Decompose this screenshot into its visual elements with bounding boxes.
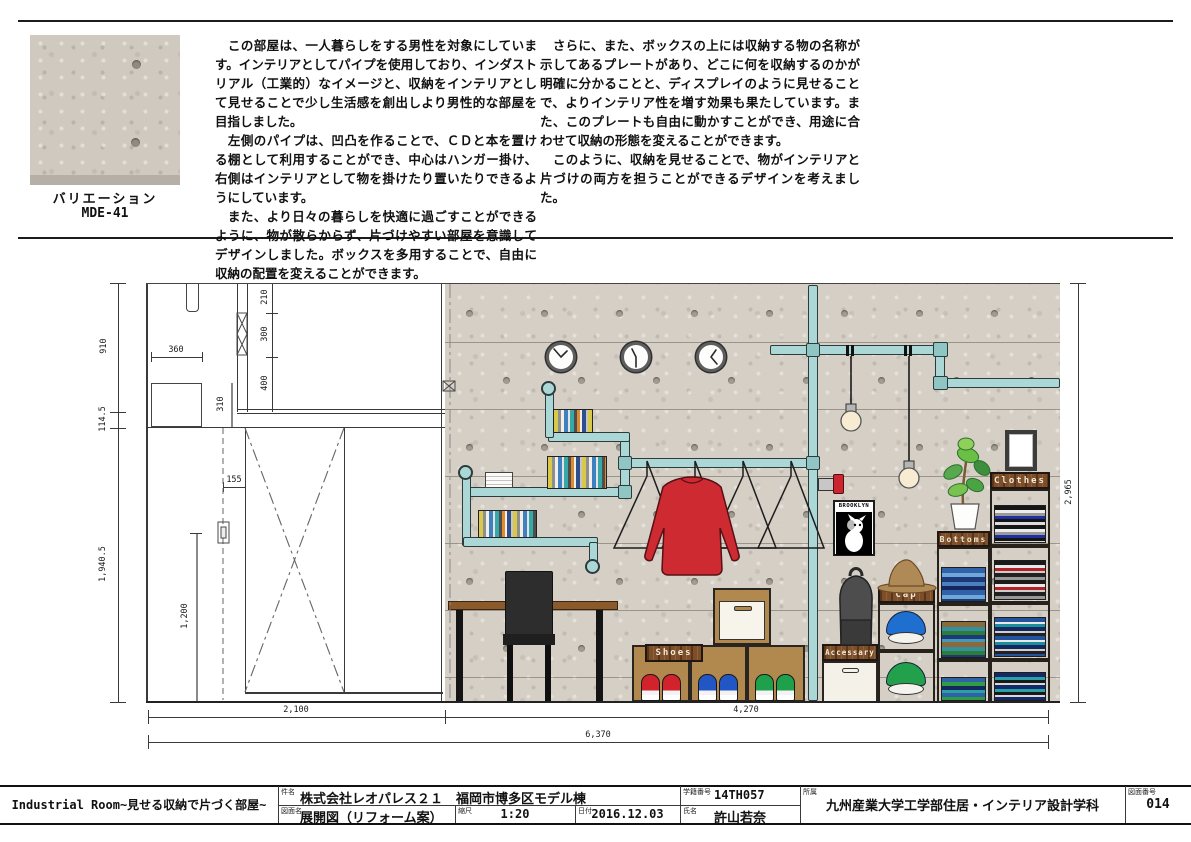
sneaker-red — [641, 674, 660, 701]
date-value: 2016.12.03 — [575, 807, 680, 821]
dim-line-360 — [151, 357, 202, 358]
subject-label: 件名 — [281, 787, 295, 797]
chair-seat — [503, 634, 555, 645]
dim-400: 400 — [260, 365, 270, 401]
dim-155: 155 — [214, 475, 254, 485]
dim-line-left — [118, 283, 119, 703]
concrete-tie-hole — [841, 310, 848, 317]
concrete-tie-hole — [766, 310, 773, 317]
folded-clothes-stack — [994, 617, 1046, 657]
dim-tick — [148, 710, 149, 724]
sneaker-blue — [719, 674, 738, 701]
dim-tick — [110, 702, 126, 703]
pipe-top-horizontal-right — [935, 378, 1060, 388]
concrete-tie-hole — [691, 310, 698, 317]
pipe-elbow-fitting — [933, 342, 948, 357]
material-sample-image — [30, 35, 180, 185]
duct-line-left — [237, 283, 238, 412]
concrete-tie-hole — [953, 511, 960, 518]
concrete-tie-hole — [878, 511, 885, 518]
pipe-flange — [585, 559, 600, 574]
wall-joint-line-a — [441, 283, 442, 703]
cd-stack-bottom — [478, 510, 537, 538]
scale-cell: 縮尺 1:20 — [455, 805, 575, 823]
valve-body — [818, 478, 834, 491]
dim-tick — [202, 352, 203, 362]
poster-title: BROOKLYN — [836, 503, 872, 512]
concrete-tie-hole — [653, 511, 660, 518]
sample-caption: バリエーション — [30, 188, 180, 207]
concrete-tie-hole — [691, 578, 698, 585]
folded-clothes-stack — [941, 621, 986, 658]
ceiling-fixture — [186, 283, 199, 312]
project-title: Industrial Room~見せる収納で片づく部屋~ — [0, 786, 278, 823]
concrete-tie-hole — [578, 377, 585, 384]
concrete-tie-hole — [841, 444, 848, 451]
left-wall-line — [146, 283, 148, 703]
pipe-hanger-rail — [624, 458, 814, 468]
dim-chain-interior — [272, 283, 273, 412]
concrete-tie-hole — [766, 578, 773, 585]
counter-line-top — [237, 409, 445, 410]
cd-stack-top — [553, 409, 593, 433]
cap-blue — [886, 611, 926, 645]
folded-clothes-stack — [941, 677, 986, 701]
drawing-name-label: 図面名 — [281, 806, 302, 816]
dim-tick — [1048, 735, 1049, 749]
dim-tick — [110, 412, 126, 413]
sneaker-green — [755, 674, 774, 701]
desk-leg-left — [456, 610, 463, 702]
sheet-no-cell: 図面番号 014 — [1125, 786, 1191, 823]
sneaker-green — [776, 674, 795, 701]
pipe-top-horizontal — [770, 345, 945, 355]
pipe-tee-fitting — [806, 456, 820, 470]
folded-clothes-stack — [994, 505, 1046, 543]
sample-code: MDE-41 — [30, 206, 180, 221]
plate-cap: Cap — [878, 587, 935, 603]
chair-leg — [507, 645, 513, 702]
dim-line-bottom-1 — [148, 717, 1048, 718]
wall-cabinet — [151, 383, 202, 427]
dim-910: 910 — [99, 326, 109, 366]
chair-back — [505, 571, 553, 637]
wall-clock-3 — [696, 342, 726, 372]
header-top-rule — [18, 20, 1173, 22]
drawing-name-cell: 図面名 展開図（リフォーム案） — [278, 805, 455, 823]
concrete-tie-hole — [916, 444, 923, 451]
name-cell: 氏名 許山若奈 — [680, 805, 800, 823]
concrete-tie-hole — [578, 645, 585, 652]
concrete-tie-hole — [466, 578, 473, 585]
door-panel-right-edge — [344, 428, 345, 692]
sample-tie-hole — [132, 60, 141, 69]
dim-line-bottom-2 — [148, 742, 1048, 743]
drawing-sheet: バリエーション MDE-41 この部屋は、一人暮らしをする男性を対象にしています… — [0, 0, 1191, 842]
description-paragraph-right: さらに、また、ボックスの上には収納する物の名称が示してあるプレートがあり、どこに… — [540, 37, 860, 208]
concrete-tie-hole — [541, 310, 548, 317]
pipe-cross-fitting — [806, 343, 820, 357]
dim-tick — [110, 283, 126, 284]
sample-tie-hole — [131, 138, 140, 147]
date-cell: 日付 2016.12.03 — [575, 805, 680, 823]
concrete-tie-hole — [916, 310, 923, 317]
dim-210: 210 — [260, 279, 270, 315]
concrete-tie-hole — [991, 444, 998, 451]
accessary-drawer — [822, 661, 878, 703]
dim-tick — [110, 428, 126, 429]
student-id-cell: 学籍番号 14TH057 — [680, 786, 800, 805]
dim-tick — [190, 533, 202, 534]
box-handle-slot — [734, 606, 752, 611]
affiliation-value: 九州産業大学工学部住居・インテリア設計学科 — [800, 786, 1125, 823]
pipe-shelf-bottom — [463, 537, 598, 547]
cap-green — [886, 662, 926, 696]
concrete-tie-hole — [541, 444, 548, 451]
pipe-cross-fitting — [618, 456, 632, 470]
dim-4270: 4,270 — [716, 705, 776, 715]
dim-line-right — [1078, 283, 1079, 703]
description-paragraph-left: この部屋は、一人暮らしをする男性を対象にしています。インテリアとしてパイプを使用… — [215, 37, 537, 284]
cord-clamp — [909, 345, 912, 356]
door-head-line — [146, 427, 445, 428]
name-label: 氏名 — [683, 806, 697, 816]
dim-6370: 6,370 — [568, 730, 628, 740]
pipe-left-riser — [462, 476, 471, 546]
dim-tick — [1070, 283, 1086, 284]
pipe-flange — [541, 381, 556, 396]
cord-clamp — [851, 345, 854, 356]
wall-clock-2 — [621, 342, 651, 372]
concrete-tie-hole — [691, 444, 698, 451]
floor-line — [146, 701, 1060, 703]
drawing-name-value: 展開図（リフォーム案） — [300, 807, 443, 826]
dim-tick — [151, 352, 152, 362]
concrete-tie-hole — [841, 578, 848, 585]
box-front-panel — [719, 601, 765, 640]
concrete-tie-hole — [466, 310, 473, 317]
dim-1940-5: 1,940.5 — [98, 539, 108, 589]
dim-line-1200 — [196, 533, 198, 702]
cord-clamp — [846, 345, 849, 356]
plate-clothes: Clothes — [990, 472, 1050, 489]
affiliation-cell: 所属 九州産業大学工学部住居・インテリア設計学科 — [800, 786, 1125, 823]
titleblock-bottom-rule — [0, 823, 1191, 825]
brooklyn-poster: BROOKLYN — [833, 500, 875, 556]
folded-jeans-stack — [941, 567, 986, 602]
dim-tick — [445, 710, 446, 724]
scale-value: 1:20 — [455, 807, 575, 821]
concrete-tie-hole — [766, 444, 773, 451]
dim-2100: 2,100 — [266, 705, 326, 715]
plate-shoes: Shoes — [645, 644, 703, 662]
ceiling-line — [146, 283, 1060, 284]
plate-bottoms: Bottoms — [937, 531, 990, 547]
concrete-tie-hole — [653, 377, 660, 384]
cord-clamp — [904, 345, 907, 356]
poster-artwork — [836, 512, 872, 555]
cardboard-box — [713, 588, 771, 645]
valve-handle — [833, 474, 844, 494]
concrete-tie-hole — [728, 511, 735, 518]
pipe-flange — [458, 465, 473, 480]
sneaker-blue — [698, 674, 717, 701]
cd-stack-middle — [547, 456, 607, 489]
pipe-shelf-top — [548, 432, 630, 442]
sheet-no-value: 014 — [1125, 786, 1191, 823]
dim-tick — [1048, 710, 1049, 724]
folded-clothes-stack — [994, 560, 1046, 600]
concrete-tie-hole — [991, 310, 998, 317]
concrete-tie-hole — [728, 377, 735, 384]
dim-114-5: 114.5 — [98, 399, 108, 439]
desk-leg-right — [596, 610, 603, 702]
dim-tick — [148, 735, 149, 749]
duct-line-right — [247, 283, 248, 412]
counter-line-bottom — [237, 413, 445, 414]
name-value: 許山若奈 — [714, 807, 766, 826]
dim-1200: 1,200 — [180, 596, 190, 636]
dim-tick — [1070, 702, 1086, 703]
door-panel-left-edge — [245, 428, 246, 692]
pipe-tee-fitting — [618, 485, 632, 499]
sample-bottom-band — [30, 175, 180, 185]
door-bottom-rail — [245, 692, 443, 694]
student-id-label: 学籍番号 — [683, 787, 711, 797]
dim-line-310 — [231, 383, 233, 427]
wall-clock-1 — [546, 342, 576, 372]
pipe-elbow-fitting — [933, 376, 948, 390]
subject-cell: 件名 株式会社レオパレス２１ 福岡市博多区モデル棟 — [278, 786, 680, 805]
concrete-tie-hole — [616, 310, 623, 317]
concrete-tie-hole — [503, 377, 510, 384]
concrete-tie-hole — [616, 578, 623, 585]
student-id-value: 14TH057 — [714, 788, 765, 802]
concrete-tie-hole — [916, 578, 923, 585]
dim-tick — [266, 357, 278, 358]
book-stack-white — [485, 472, 513, 488]
dim-300: 300 — [260, 316, 270, 352]
drawer-handle-slot — [842, 668, 859, 673]
sneaker-red — [662, 674, 681, 701]
concrete-tie-hole — [878, 377, 885, 384]
picture-frame — [1005, 430, 1037, 471]
dim-360: 360 — [156, 345, 196, 355]
header-bottom-rule — [18, 237, 1173, 239]
dim-line-155 — [223, 487, 245, 488]
plate-accessary: Accessary — [822, 644, 878, 661]
folded-clothes-stack — [994, 672, 1046, 701]
concrete-tie-hole — [578, 511, 585, 518]
dog-illustration — [836, 512, 872, 555]
dim-310: 310 — [216, 386, 226, 422]
chair-leg — [545, 645, 551, 702]
dim-2965: 2,965 — [1064, 472, 1074, 512]
concrete-tie-hole — [466, 444, 473, 451]
